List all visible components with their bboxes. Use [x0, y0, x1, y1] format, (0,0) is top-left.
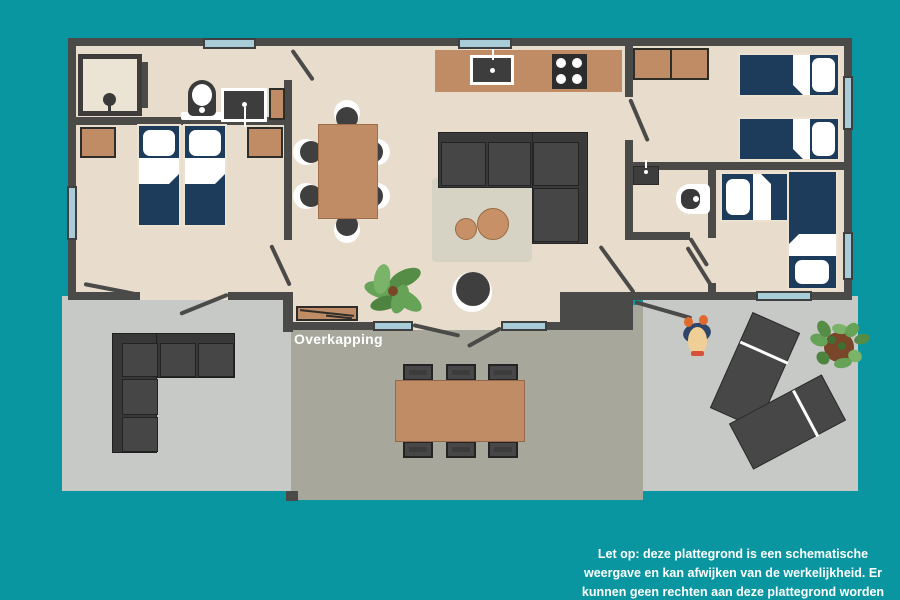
single-bed	[720, 172, 790, 222]
disclaimer-text: Let op: deze plattegrond is een schemati…	[578, 545, 888, 600]
single-bed	[738, 53, 840, 97]
kitchen-sink	[470, 55, 514, 85]
outdoor-chair	[488, 441, 518, 458]
sheet-fold	[793, 149, 803, 159]
toilet-bowl	[192, 84, 212, 106]
coffee-table	[477, 208, 509, 240]
shower-drain-stem	[108, 104, 111, 112]
sheet-fold	[215, 174, 225, 184]
person-head	[688, 327, 707, 354]
sofa-cushion	[533, 188, 579, 242]
dining-chair	[293, 139, 319, 165]
burner-icon	[556, 74, 566, 84]
stove	[552, 54, 587, 89]
sheet-fold	[169, 174, 179, 184]
wall-bathroom2	[633, 232, 690, 240]
wall-chunk	[560, 292, 633, 330]
outdoor-chair	[403, 364, 433, 381]
toilet-button	[199, 107, 205, 113]
sofa-cushion	[198, 343, 234, 377]
bed-pillow	[726, 179, 750, 215]
dining-chair	[293, 183, 319, 209]
toilet	[188, 80, 216, 116]
outdoor-chair	[446, 364, 476, 381]
sofa-cushion	[122, 343, 158, 377]
bathroom-cabinet	[269, 88, 285, 120]
wall-living-right-top	[625, 46, 633, 97]
window-top-1	[203, 38, 256, 49]
burner-icon	[556, 58, 566, 68]
sofa-cushion	[122, 417, 158, 452]
single-bed	[738, 117, 840, 161]
round-chair	[452, 272, 492, 312]
window-right-1	[843, 76, 853, 130]
person-belt	[691, 351, 704, 356]
dining-chair	[334, 217, 360, 243]
storage-bench	[296, 306, 358, 321]
burner-icon	[572, 58, 582, 68]
single-bed	[137, 124, 181, 227]
sofa-cushion	[441, 142, 486, 186]
dining-table	[318, 124, 378, 219]
overkapping-label: Overkapping	[294, 331, 383, 347]
wall-right-section	[633, 162, 844, 170]
potted-plant	[810, 320, 868, 376]
sheet-fold	[793, 85, 803, 95]
disclaimer-line: kunnen geen rechten aan deze plattegrond…	[578, 583, 888, 600]
wall-bottom-right	[633, 292, 852, 300]
houseplant	[362, 262, 424, 322]
wall-bedroom-left	[284, 80, 292, 240]
coffee-table	[455, 218, 477, 240]
person	[678, 315, 716, 359]
shower-glass	[142, 62, 148, 108]
burner-icon	[572, 74, 582, 84]
single-bed	[787, 170, 838, 290]
faucet-stem	[244, 107, 246, 127]
wall-living-right-mid	[625, 140, 633, 240]
single-bed	[183, 124, 227, 227]
wardrobe	[633, 48, 709, 80]
disclaimer-line: weergave en kan afwijken van de werkelij…	[578, 564, 888, 583]
outdoor-dining-table	[395, 380, 525, 442]
sofa-cushion	[160, 343, 196, 377]
person-shoulder	[699, 315, 708, 325]
floorplan: Overkapping Let op: deze plattegrond is …	[0, 0, 900, 600]
faucet-stem	[645, 160, 647, 168]
disclaimer-line: Let op: deze plattegrond is een schemati…	[578, 545, 888, 564]
window-right-2	[843, 232, 853, 280]
outdoor-chair	[446, 441, 476, 458]
window-terrace-2	[501, 321, 547, 331]
sheet-fold	[789, 234, 799, 244]
outdoor-chair	[403, 441, 433, 458]
bed-pillow	[189, 130, 221, 156]
sofa-cushion	[122, 379, 158, 415]
faucet-stem	[492, 49, 494, 60]
washbasin-1	[221, 88, 267, 122]
bed-pillow	[143, 130, 175, 156]
dining-chair	[334, 100, 360, 126]
faucet-icon	[644, 170, 648, 174]
wardrobe-divider	[670, 50, 672, 78]
window-terrace-1	[373, 321, 413, 331]
wall-bumpout-a	[283, 322, 375, 330]
person-shoulder	[684, 317, 693, 327]
nightstand	[247, 127, 283, 158]
canopy-post	[286, 491, 298, 501]
nightstand	[80, 127, 116, 158]
kitchen-counter	[435, 50, 622, 92]
shower	[78, 54, 142, 116]
window-bottom-right	[756, 291, 812, 301]
faucet-icon	[490, 68, 495, 73]
bed-pillow	[812, 122, 835, 156]
toilet	[676, 184, 710, 214]
bed-pillow	[812, 58, 835, 92]
toilet-button	[693, 196, 699, 202]
sofa-cushion	[533, 142, 579, 186]
sheet-fold	[761, 174, 771, 184]
window-top-2	[458, 38, 512, 49]
sofa-cushion	[488, 142, 531, 186]
left-terrace	[62, 296, 291, 491]
window-left	[67, 186, 77, 240]
outdoor-chair	[488, 364, 518, 381]
wall-left	[68, 38, 76, 300]
washbasin-2	[633, 166, 659, 185]
bed-pillow	[795, 260, 829, 284]
